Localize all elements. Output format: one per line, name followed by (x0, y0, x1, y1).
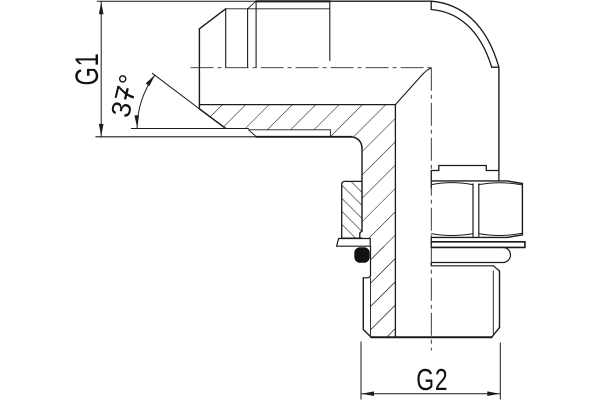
svg-text:G1: G1 (70, 52, 105, 85)
svg-text:G2: G2 (416, 361, 448, 396)
